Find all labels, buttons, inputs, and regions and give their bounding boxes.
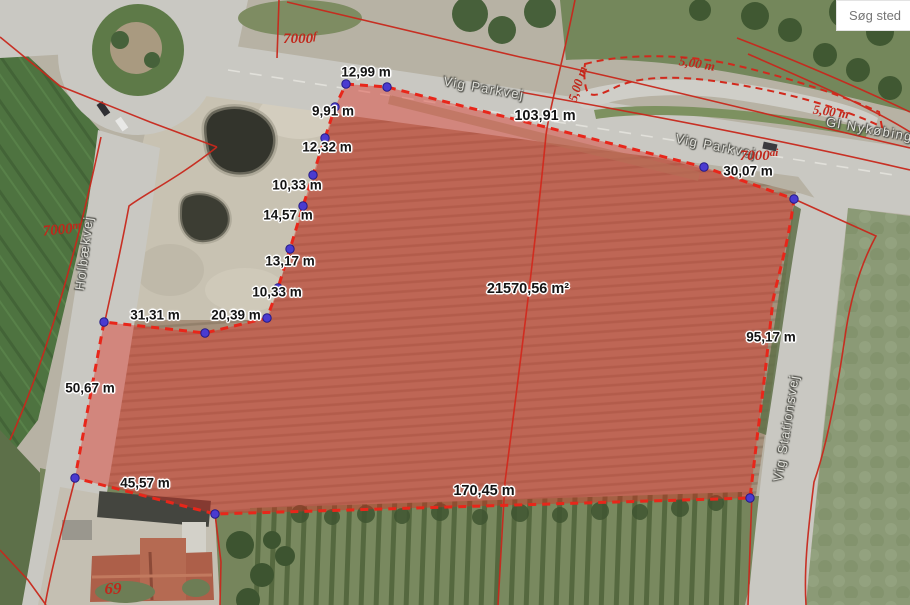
pond-large <box>204 107 276 175</box>
measurement-label: 12,99 m <box>341 65 391 80</box>
measurement-label: 12,32 m <box>302 140 352 155</box>
measurement-label: 50,67 m <box>65 381 115 396</box>
measurement-label: 10,33 m <box>272 178 322 193</box>
vertex-handle <box>286 245 294 253</box>
house-number-label: 69 <box>105 579 122 599</box>
aerial-map-canvas <box>0 0 910 605</box>
parcel-number-label: 7000m <box>42 219 82 240</box>
measurement-label: 20,39 m <box>211 308 261 323</box>
measurement-label: 30,07 m <box>723 164 773 179</box>
vertex-handle <box>383 83 391 91</box>
vertex-handle <box>700 163 708 171</box>
measurement-label: 103,91 m <box>514 108 575 124</box>
vertex-handle <box>100 318 108 326</box>
area-label: 21570,56 m² <box>487 281 569 297</box>
search-input[interactable] <box>836 0 910 31</box>
parcel-number-label: 7000f <box>283 30 317 48</box>
measurement-label: 13,17 m <box>265 254 315 269</box>
vertex-handle <box>746 494 754 502</box>
measurement-label: 31,31 m <box>130 308 180 323</box>
measurement-label: 170,45 m <box>453 483 514 499</box>
measurement-label: 9,91 m <box>312 104 354 119</box>
vertex-handle <box>201 329 209 337</box>
vertex-handle <box>342 80 350 88</box>
measurement-label: 10,33 m <box>252 285 302 300</box>
vertex-handle <box>263 314 271 322</box>
measurement-label: 45,57 m <box>120 476 170 491</box>
parcel-number-label: 7000ai <box>740 147 779 165</box>
measurement-label: 95,17 m <box>746 330 796 345</box>
map-viewport[interactable]: Vig Parkvej Vig Parkvej Gl Nykøbingvej H… <box>0 0 910 605</box>
measurement-label: 14,57 m <box>263 208 313 223</box>
vertex-handle <box>211 510 219 518</box>
pond-small <box>180 193 230 242</box>
vertex-handle <box>71 474 79 482</box>
vertex-handle <box>790 195 798 203</box>
